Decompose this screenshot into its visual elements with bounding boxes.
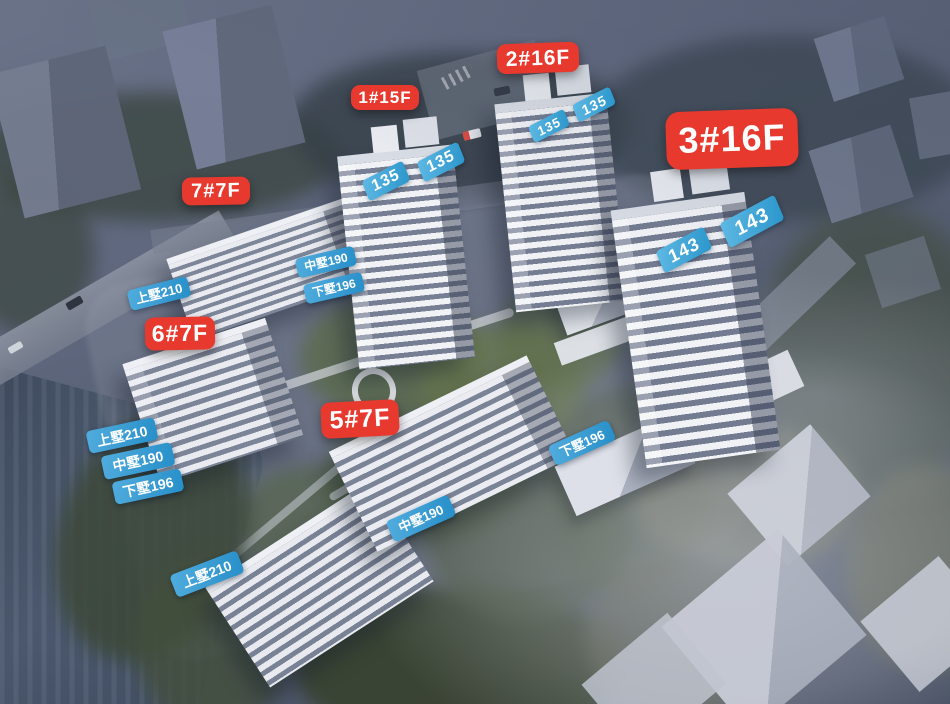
tower-1-penthouse xyxy=(371,125,400,154)
aerial-render-canvas: 135 135 135 135 143 143 上墅210 中墅190 下墅19… xyxy=(0,0,950,704)
tower-1-penthouse xyxy=(403,116,440,147)
building-label-1: 1#15F xyxy=(351,85,419,110)
tower-3-penthouse xyxy=(650,168,684,202)
city-building-shape xyxy=(0,46,141,219)
building-label-7: 7#7F xyxy=(182,176,250,205)
building-label-5: 5#7F xyxy=(320,399,400,439)
building-label-3: 3#16F xyxy=(665,108,799,171)
tower-2-penthouse xyxy=(523,73,552,102)
building-label-6: 6#7F xyxy=(145,316,216,350)
building-label-2: 2#16F xyxy=(497,42,580,75)
